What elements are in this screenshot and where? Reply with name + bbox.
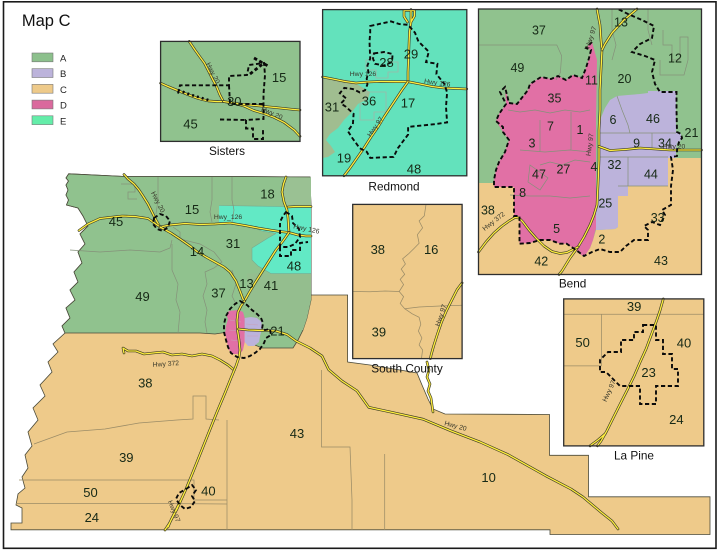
svg-text:Sisters: Sisters — [209, 144, 245, 158]
svg-text:38: 38 — [138, 375, 152, 390]
svg-text:La Pine: La Pine — [614, 448, 654, 462]
svg-text:Map C: Map C — [22, 12, 71, 30]
svg-text:40: 40 — [677, 336, 691, 351]
svg-text:24: 24 — [85, 510, 99, 525]
svg-text:28: 28 — [379, 55, 393, 70]
svg-text:36: 36 — [362, 93, 376, 108]
svg-text:50: 50 — [83, 485, 97, 500]
svg-text:31: 31 — [325, 100, 339, 115]
svg-text:Hwy 126: Hwy 126 — [350, 71, 377, 78]
svg-text:29: 29 — [404, 46, 418, 61]
svg-text:Bend: Bend — [559, 277, 587, 291]
svg-text:3: 3 — [529, 136, 536, 150]
svg-text:15: 15 — [272, 70, 286, 85]
svg-text:B: B — [60, 69, 66, 80]
svg-text:4: 4 — [591, 160, 598, 174]
svg-text:25: 25 — [598, 197, 612, 211]
svg-text:Hwy_126: Hwy_126 — [214, 214, 243, 221]
svg-text:50: 50 — [575, 335, 589, 350]
svg-text:45: 45 — [183, 117, 197, 132]
svg-text:37: 37 — [211, 286, 225, 301]
svg-text:42: 42 — [534, 255, 548, 269]
svg-text:43: 43 — [654, 254, 668, 268]
svg-text:13: 13 — [239, 276, 253, 291]
svg-text:Redmond: Redmond — [368, 180, 419, 194]
svg-text:E: E — [60, 116, 66, 127]
svg-text:Hwy 20: Hwy 20 — [663, 144, 686, 151]
svg-text:39: 39 — [372, 325, 386, 340]
svg-text:31: 31 — [226, 236, 240, 251]
svg-text:1: 1 — [577, 123, 584, 137]
svg-text:2: 2 — [598, 232, 605, 246]
svg-text:10: 10 — [481, 470, 495, 485]
svg-text:21: 21 — [685, 126, 699, 140]
svg-text:21: 21 — [270, 324, 284, 339]
svg-text:24: 24 — [669, 412, 683, 427]
svg-text:44: 44 — [644, 168, 658, 182]
svg-text:41: 41 — [264, 278, 278, 293]
svg-text:16: 16 — [424, 242, 438, 257]
svg-text:27: 27 — [556, 163, 570, 177]
svg-text:40: 40 — [201, 484, 215, 499]
svg-text:14: 14 — [190, 244, 204, 259]
svg-text:38: 38 — [481, 203, 495, 217]
svg-text:35: 35 — [548, 92, 562, 106]
svg-text:38: 38 — [371, 242, 385, 257]
svg-text:48: 48 — [287, 259, 301, 274]
svg-text:23: 23 — [641, 365, 655, 380]
svg-text:49: 49 — [510, 61, 524, 75]
svg-text:37: 37 — [532, 24, 546, 38]
svg-text:45: 45 — [109, 214, 123, 229]
svg-text:7: 7 — [547, 119, 554, 133]
svg-text:49: 49 — [135, 289, 149, 304]
svg-text:30: 30 — [227, 94, 241, 109]
svg-text:18: 18 — [260, 187, 274, 202]
svg-text:33: 33 — [651, 211, 665, 225]
svg-text:48: 48 — [407, 161, 421, 176]
svg-text:39: 39 — [627, 299, 641, 314]
svg-text:11: 11 — [585, 74, 598, 88]
svg-text:5: 5 — [553, 222, 560, 236]
svg-text:43: 43 — [290, 426, 304, 441]
svg-text:20: 20 — [618, 72, 632, 86]
svg-text:C: C — [60, 85, 67, 96]
svg-text:D: D — [60, 101, 67, 112]
svg-text:8: 8 — [519, 186, 526, 200]
svg-text:19: 19 — [337, 150, 351, 165]
svg-text:39: 39 — [119, 450, 133, 465]
svg-text:17: 17 — [401, 95, 415, 110]
svg-text:13: 13 — [614, 16, 628, 30]
svg-text:46: 46 — [646, 112, 660, 126]
svg-text:47: 47 — [532, 168, 546, 182]
svg-text:15: 15 — [185, 202, 199, 217]
svg-text:A: A — [60, 54, 67, 65]
svg-text:9: 9 — [633, 136, 640, 150]
svg-text:12: 12 — [668, 51, 682, 65]
svg-text:6: 6 — [610, 113, 617, 127]
svg-text:South County: South County — [371, 362, 443, 376]
svg-text:32: 32 — [608, 158, 622, 172]
